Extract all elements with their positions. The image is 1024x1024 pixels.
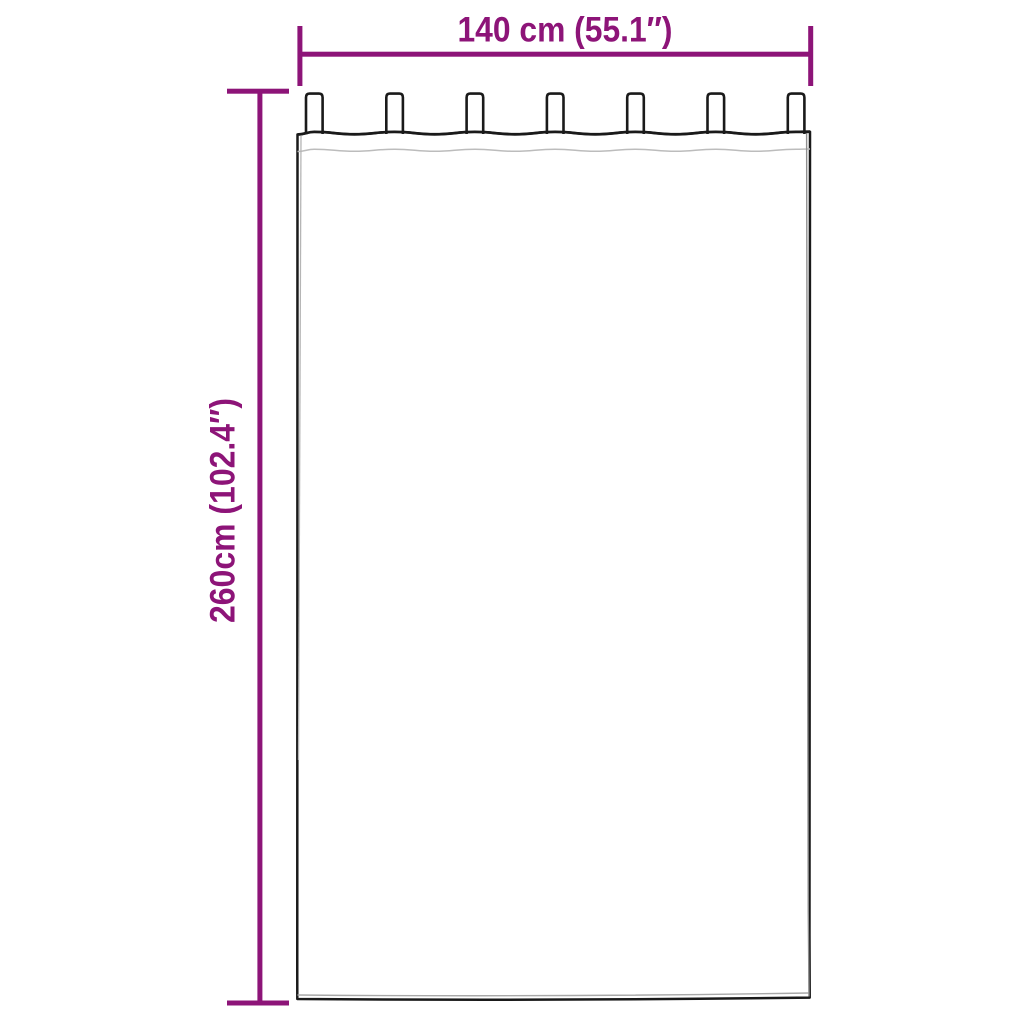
svg-text:260cm (102.4″): 260cm (102.4″) xyxy=(204,398,243,623)
svg-text:140 cm (55.1″): 140 cm (55.1″) xyxy=(458,11,673,50)
